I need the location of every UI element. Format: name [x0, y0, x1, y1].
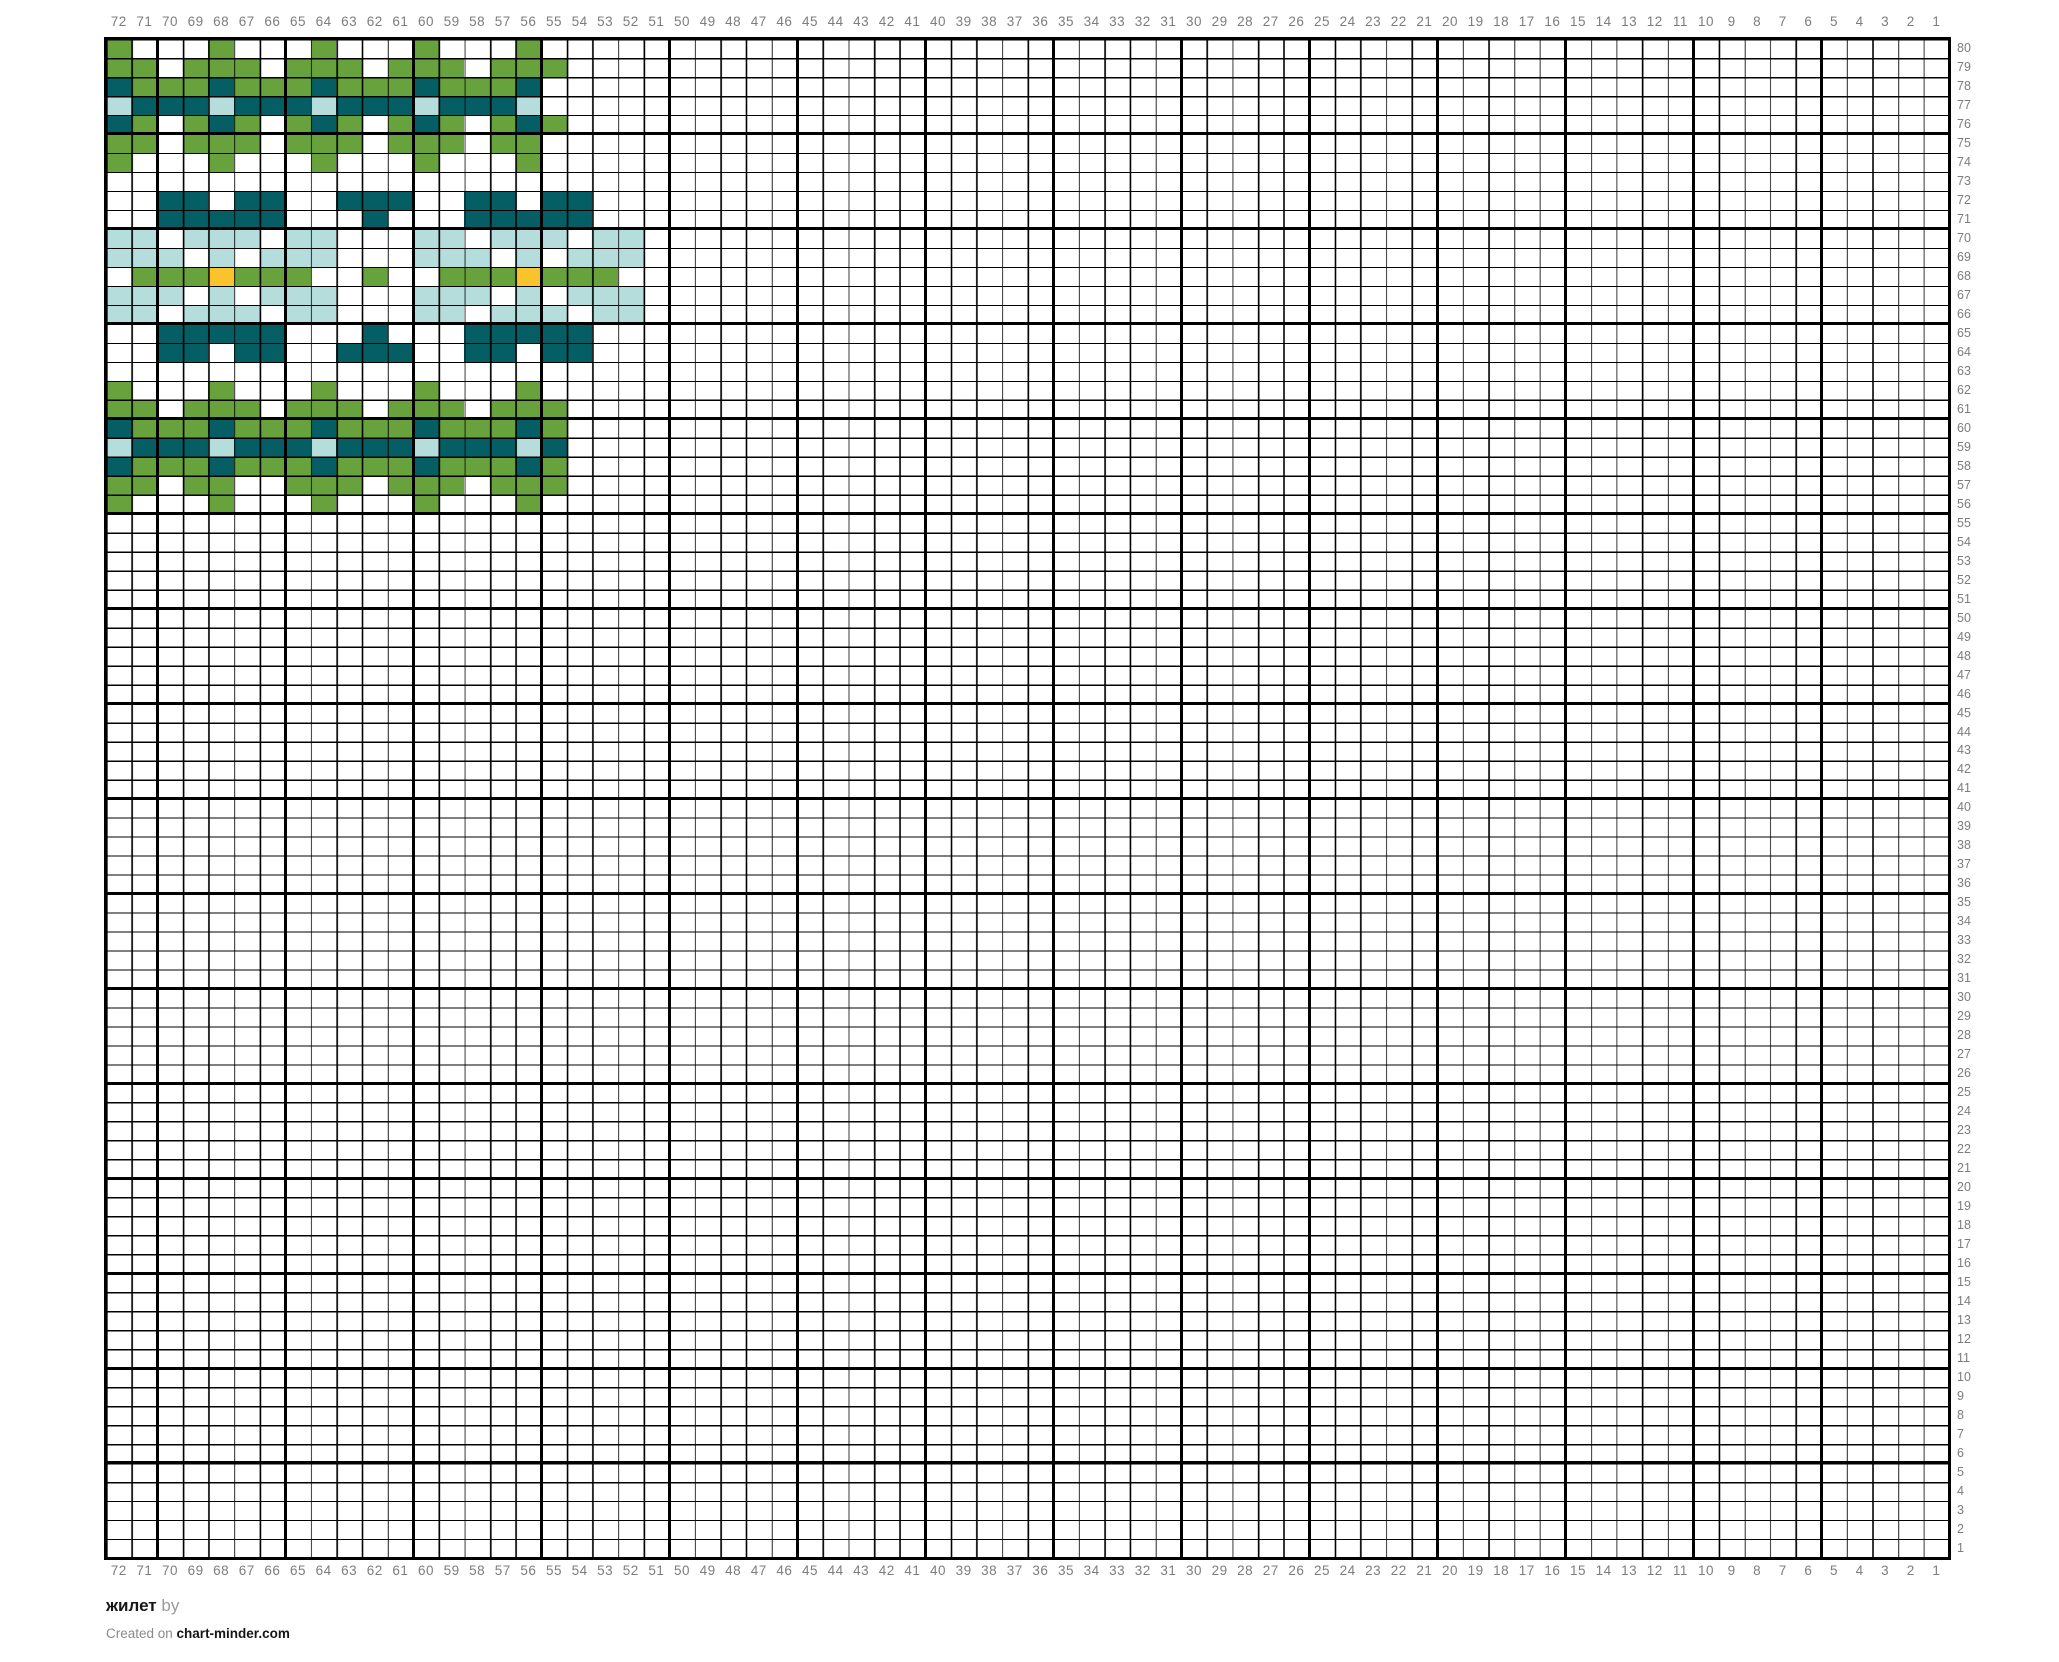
stitch-cell [516, 457, 542, 476]
stitch-cell [541, 438, 567, 457]
stitch-cell [157, 210, 183, 229]
column-label: 63 [336, 12, 362, 32]
row-label: 23 [1957, 1121, 1971, 1140]
stitch-cell [208, 438, 234, 457]
stitch-cell [439, 134, 465, 153]
column-label: 56 [516, 1561, 542, 1581]
stitch-cell [439, 229, 465, 248]
stitch-cell [106, 248, 132, 267]
stitch-cell [516, 400, 542, 419]
stitch-cell [234, 267, 260, 286]
stitch-cell [311, 286, 337, 305]
row-label: 14 [1957, 1292, 1971, 1311]
row-label: 53 [1957, 552, 1971, 571]
column-label: 25 [1309, 12, 1335, 32]
stitch-cell [592, 305, 618, 324]
stitch-cell [234, 229, 260, 248]
column-label: 27 [1258, 12, 1284, 32]
column-label: 49 [695, 12, 721, 32]
column-label: 57 [490, 12, 516, 32]
stitch-cell [516, 381, 542, 400]
stitch-cell [541, 267, 567, 286]
stitch-cell [541, 229, 567, 248]
row-label: 67 [1957, 286, 1971, 305]
bold-gridline-horizontal [105, 892, 1950, 895]
row-label: 78 [1957, 77, 1971, 96]
bold-gridline-horizontal [105, 1367, 1950, 1370]
column-label: 21 [1412, 1561, 1438, 1581]
row-label: 27 [1957, 1045, 1971, 1064]
column-label: 15 [1565, 1561, 1591, 1581]
column-label: 58 [464, 1561, 490, 1581]
stitch-cell [336, 134, 362, 153]
stitch-cell [567, 267, 593, 286]
column-label: 17 [1514, 12, 1540, 32]
stitch-cell [285, 134, 311, 153]
stitch-cell [208, 77, 234, 96]
column-label: 28 [1232, 12, 1258, 32]
bold-gridline-horizontal [105, 1177, 1950, 1180]
column-label: 8 [1744, 1561, 1770, 1581]
column-label: 42 [874, 1561, 900, 1581]
column-label: 39 [951, 1561, 977, 1581]
stitch-cell [183, 400, 209, 419]
row-label: 52 [1957, 571, 1971, 590]
stitch-cell [183, 324, 209, 343]
stitch-cell [336, 400, 362, 419]
stitch-cell [336, 419, 362, 438]
stitch-cell [439, 58, 465, 77]
stitch-cell [132, 134, 158, 153]
stitch-cell [516, 77, 542, 96]
row-label: 25 [1957, 1083, 1971, 1102]
row-label: 21 [1957, 1159, 1971, 1178]
stitch-cell [285, 457, 311, 476]
column-label: 49 [695, 1561, 721, 1581]
stitch-cell [157, 77, 183, 96]
column-label: 20 [1437, 1561, 1463, 1581]
stitch-cell [157, 267, 183, 286]
stitch-cell [413, 457, 439, 476]
stitch-cell [541, 191, 567, 210]
stitch-cell [285, 305, 311, 324]
stitch-cell [132, 286, 158, 305]
stitch-cell [464, 438, 490, 457]
stitch-cell [618, 286, 644, 305]
stitch-cell [592, 267, 618, 286]
stitch-cell [311, 96, 337, 115]
row-label: 60 [1957, 419, 1971, 438]
stitch-cell [464, 96, 490, 115]
column-label: 70 [157, 12, 183, 32]
row-label: 49 [1957, 628, 1971, 647]
stitch-cell [516, 495, 542, 514]
stitch-cell [234, 438, 260, 457]
column-label: 34 [1079, 1561, 1105, 1581]
row-label: 72 [1957, 191, 1971, 210]
stitch-cell [439, 400, 465, 419]
column-label: 41 [900, 12, 926, 32]
stitch-cell [157, 191, 183, 210]
stitch-cell [208, 381, 234, 400]
stitch-cell [183, 210, 209, 229]
column-label: 19 [1463, 1561, 1489, 1581]
stitch-cell [208, 134, 234, 153]
stitch-cell [157, 438, 183, 457]
row-label: 79 [1957, 58, 1971, 77]
chart-title: жилет [106, 1596, 157, 1615]
stitch-cell [516, 229, 542, 248]
column-label: 69 [183, 1561, 209, 1581]
row-label: 7 [1957, 1425, 1964, 1444]
column-label: 67 [234, 12, 260, 32]
bold-gridline-horizontal [105, 132, 1950, 135]
stitch-cell [464, 77, 490, 96]
stitch-cell [260, 248, 286, 267]
stitch-cell [157, 248, 183, 267]
stitch-cell [311, 400, 337, 419]
stitch-cell [464, 286, 490, 305]
column-label: 2 [1898, 1561, 1924, 1581]
column-label: 48 [720, 1561, 746, 1581]
row-label: 59 [1957, 438, 1971, 457]
column-label: 45 [797, 1561, 823, 1581]
column-label: 7 [1770, 1561, 1796, 1581]
row-label: 42 [1957, 760, 1971, 779]
stitch-cell [260, 267, 286, 286]
stitch-cell [464, 419, 490, 438]
stitch-cell [311, 77, 337, 96]
bold-gridline-vertical [1308, 38, 1311, 1559]
stitch-cell [183, 96, 209, 115]
row-label: 20 [1957, 1178, 1971, 1197]
stitch-cell [132, 77, 158, 96]
stitch-cell [285, 400, 311, 419]
column-label: 32 [1130, 12, 1156, 32]
stitch-cell [516, 153, 542, 172]
column-label: 61 [388, 12, 414, 32]
stitch-cell [260, 438, 286, 457]
bold-gridline-horizontal [105, 607, 1950, 610]
stitch-cell [234, 419, 260, 438]
column-label: 45 [797, 12, 823, 32]
column-label: 17 [1514, 1561, 1540, 1581]
column-label: 35 [1053, 1561, 1079, 1581]
column-label: 66 [260, 12, 286, 32]
row-label: 8 [1957, 1406, 1964, 1425]
stitch-cell [388, 134, 414, 153]
column-label: 59 [439, 1561, 465, 1581]
stitch-cell [464, 324, 490, 343]
row-label: 68 [1957, 267, 1971, 286]
row-label: 45 [1957, 704, 1971, 723]
stitch-cell [541, 343, 567, 362]
stitch-cell [516, 39, 542, 58]
column-label: 13 [1616, 12, 1642, 32]
column-label: 53 [592, 12, 618, 32]
row-label: 64 [1957, 343, 1971, 362]
row-label: 55 [1957, 514, 1971, 533]
chart-title-line: жилет by [106, 1596, 179, 1616]
stitch-cell [208, 210, 234, 229]
stitch-cell [234, 343, 260, 362]
stitch-cell [285, 77, 311, 96]
column-label: 37 [1002, 12, 1028, 32]
stitch-cell [362, 210, 388, 229]
bold-gridline-vertical [1564, 38, 1567, 1559]
stitch-cell [464, 457, 490, 476]
column-label: 3 [1872, 12, 1898, 32]
stitch-cell [311, 305, 337, 324]
stitch-cell [413, 495, 439, 514]
row-label: 22 [1957, 1140, 1971, 1159]
bold-gridline-vertical [1692, 38, 1695, 1559]
column-label: 26 [1284, 12, 1310, 32]
stitch-cell [413, 438, 439, 457]
column-label: 42 [874, 12, 900, 32]
stitch-cell [490, 115, 516, 134]
stitch-cell [208, 324, 234, 343]
column-label: 30 [1181, 1561, 1207, 1581]
row-label: 5 [1957, 1463, 1964, 1482]
column-label: 55 [541, 1561, 567, 1581]
stitch-cell [311, 476, 337, 495]
stitch-cell [157, 324, 183, 343]
stitch-cell [516, 267, 542, 286]
stitch-cell [285, 96, 311, 115]
credit-site-link[interactable]: chart-minder.com [177, 1626, 290, 1641]
row-label: 69 [1957, 248, 1971, 267]
row-label: 29 [1957, 1007, 1971, 1026]
stitch-cell [183, 58, 209, 77]
column-label: 22 [1386, 1561, 1412, 1581]
stitch-cell [285, 419, 311, 438]
stitch-cell [388, 96, 414, 115]
knitting-chart-grid [106, 39, 1949, 1558]
column-label: 33 [1104, 12, 1130, 32]
column-label: 50 [669, 1561, 695, 1581]
stitch-cell [490, 400, 516, 419]
column-label: 71 [132, 1561, 158, 1581]
row-label: 57 [1957, 476, 1971, 495]
stitch-cell [106, 381, 132, 400]
stitch-cell [132, 58, 158, 77]
stitch-cell [388, 400, 414, 419]
row-label: 9 [1957, 1387, 1964, 1406]
stitch-cell [106, 96, 132, 115]
stitch-cell [388, 476, 414, 495]
stitch-cell [362, 438, 388, 457]
stitch-cell [439, 115, 465, 134]
stitch-cell [208, 96, 234, 115]
row-label: 24 [1957, 1102, 1971, 1121]
column-label: 44 [823, 1561, 849, 1581]
column-label: 53 [592, 1561, 618, 1581]
column-label: 7 [1770, 12, 1796, 32]
row-label: 80 [1957, 39, 1971, 58]
column-label: 4 [1847, 12, 1873, 32]
stitch-cell [183, 191, 209, 210]
stitch-cell [336, 191, 362, 210]
stitch-cell [336, 58, 362, 77]
stitch-cell [208, 305, 234, 324]
column-label: 24 [1335, 1561, 1361, 1581]
stitch-cell [516, 210, 542, 229]
column-label: 26 [1284, 1561, 1310, 1581]
column-label: 68 [208, 1561, 234, 1581]
stitch-cell [336, 476, 362, 495]
stitch-cell [132, 248, 158, 267]
stitch-cell [208, 286, 234, 305]
stitch-cell [208, 267, 234, 286]
stitch-cell [106, 305, 132, 324]
row-label: 13 [1957, 1311, 1971, 1330]
row-label: 31 [1957, 969, 1971, 988]
stitch-cell [260, 286, 286, 305]
stitch-cell [208, 476, 234, 495]
column-label: 12 [1642, 12, 1668, 32]
column-label: 47 [746, 12, 772, 32]
stitch-cell [362, 343, 388, 362]
stitch-cell [592, 229, 618, 248]
row-label: 75 [1957, 134, 1971, 153]
column-label: 72 [106, 1561, 132, 1581]
stitch-cell [260, 324, 286, 343]
stitch-cell [490, 438, 516, 457]
stitch-cell [285, 248, 311, 267]
column-label: 51 [644, 12, 670, 32]
column-label: 31 [1156, 1561, 1182, 1581]
column-label: 51 [644, 1561, 670, 1581]
stitch-cell [336, 457, 362, 476]
stitch-cell [208, 115, 234, 134]
row-label: 66 [1957, 305, 1971, 324]
stitch-cell [413, 153, 439, 172]
stitch-cell [157, 286, 183, 305]
row-label: 2 [1957, 1520, 1964, 1539]
column-label: 4 [1847, 1561, 1873, 1581]
stitch-cell [311, 39, 337, 58]
column-label: 14 [1591, 12, 1617, 32]
stitch-cell [234, 457, 260, 476]
column-label: 60 [413, 12, 439, 32]
column-label: 54 [567, 12, 593, 32]
stitch-cell [183, 476, 209, 495]
stitch-cell [516, 96, 542, 115]
column-label: 20 [1437, 12, 1463, 32]
row-label: 34 [1957, 912, 1971, 931]
column-label: 2 [1898, 12, 1924, 32]
row-label: 12 [1957, 1330, 1971, 1349]
stitch-cell [567, 248, 593, 267]
column-label: 64 [311, 1561, 337, 1581]
stitch-cell [157, 457, 183, 476]
row-label: 1 [1957, 1539, 1964, 1558]
grid-outer-border [104, 37, 1951, 1560]
stitch-cell [439, 419, 465, 438]
column-label: 70 [157, 1561, 183, 1581]
column-label: 15 [1565, 12, 1591, 32]
stitch-cell [260, 77, 286, 96]
stitch-cell [567, 191, 593, 210]
stitch-cell [490, 229, 516, 248]
stitch-cell [541, 115, 567, 134]
row-label: 61 [1957, 400, 1971, 419]
column-label: 63 [336, 1561, 362, 1581]
chart-byline: by [157, 1596, 180, 1615]
stitch-cell [439, 438, 465, 457]
column-label: 40 [925, 1561, 951, 1581]
stitch-cell [311, 381, 337, 400]
stitch-cell [516, 419, 542, 438]
row-labels-right: 8079787776757473727170696867666564636261… [1957, 39, 1997, 1558]
stitch-cell [618, 305, 644, 324]
column-label: 62 [362, 12, 388, 32]
column-label: 30 [1181, 12, 1207, 32]
stitch-cell [541, 419, 567, 438]
stitch-cell [311, 419, 337, 438]
stitch-cell [285, 229, 311, 248]
row-label: 56 [1957, 495, 1971, 514]
column-label: 61 [388, 1561, 414, 1581]
stitch-cell [234, 115, 260, 134]
stitch-cell [490, 476, 516, 495]
stitch-cell [311, 438, 337, 457]
chart-credit-line: Created on chart-minder.com [106, 1626, 290, 1641]
stitch-cell [132, 400, 158, 419]
row-label: 48 [1957, 647, 1971, 666]
stitch-cell [362, 457, 388, 476]
stitch-cell [132, 419, 158, 438]
bold-gridline-horizontal [105, 987, 1950, 990]
column-label: 43 [848, 12, 874, 32]
stitch-cell [336, 438, 362, 457]
stitch-cell [311, 115, 337, 134]
stitch-cell [106, 438, 132, 457]
stitch-cell [388, 191, 414, 210]
column-label: 9 [1719, 1561, 1745, 1581]
stitch-cell [208, 153, 234, 172]
stitch-cell [234, 400, 260, 419]
stitch-cell [106, 77, 132, 96]
stitch-cell [413, 381, 439, 400]
stitch-cell [362, 191, 388, 210]
row-label: 32 [1957, 950, 1971, 969]
column-label: 50 [669, 12, 695, 32]
column-label: 10 [1693, 12, 1719, 32]
bold-gridline-horizontal [105, 512, 1950, 515]
stitch-cell [208, 58, 234, 77]
stitch-cell [516, 324, 542, 343]
stitch-cell [490, 191, 516, 210]
stitch-cell [234, 305, 260, 324]
row-label: 26 [1957, 1064, 1971, 1083]
column-label: 57 [490, 1561, 516, 1581]
stitch-cell [388, 457, 414, 476]
knitting-chart-page: 7271706968676665646362616059585756555453… [0, 0, 2059, 1662]
stitch-cell [183, 267, 209, 286]
stitch-cell [439, 77, 465, 96]
stitch-cell [311, 495, 337, 514]
column-label: 54 [567, 1561, 593, 1581]
stitch-cell [106, 229, 132, 248]
stitch-cell [106, 476, 132, 495]
column-label: 16 [1540, 12, 1566, 32]
stitch-cell [234, 77, 260, 96]
column-label: 25 [1309, 1561, 1335, 1581]
column-label: 37 [1002, 1561, 1028, 1581]
stitch-cell [413, 305, 439, 324]
